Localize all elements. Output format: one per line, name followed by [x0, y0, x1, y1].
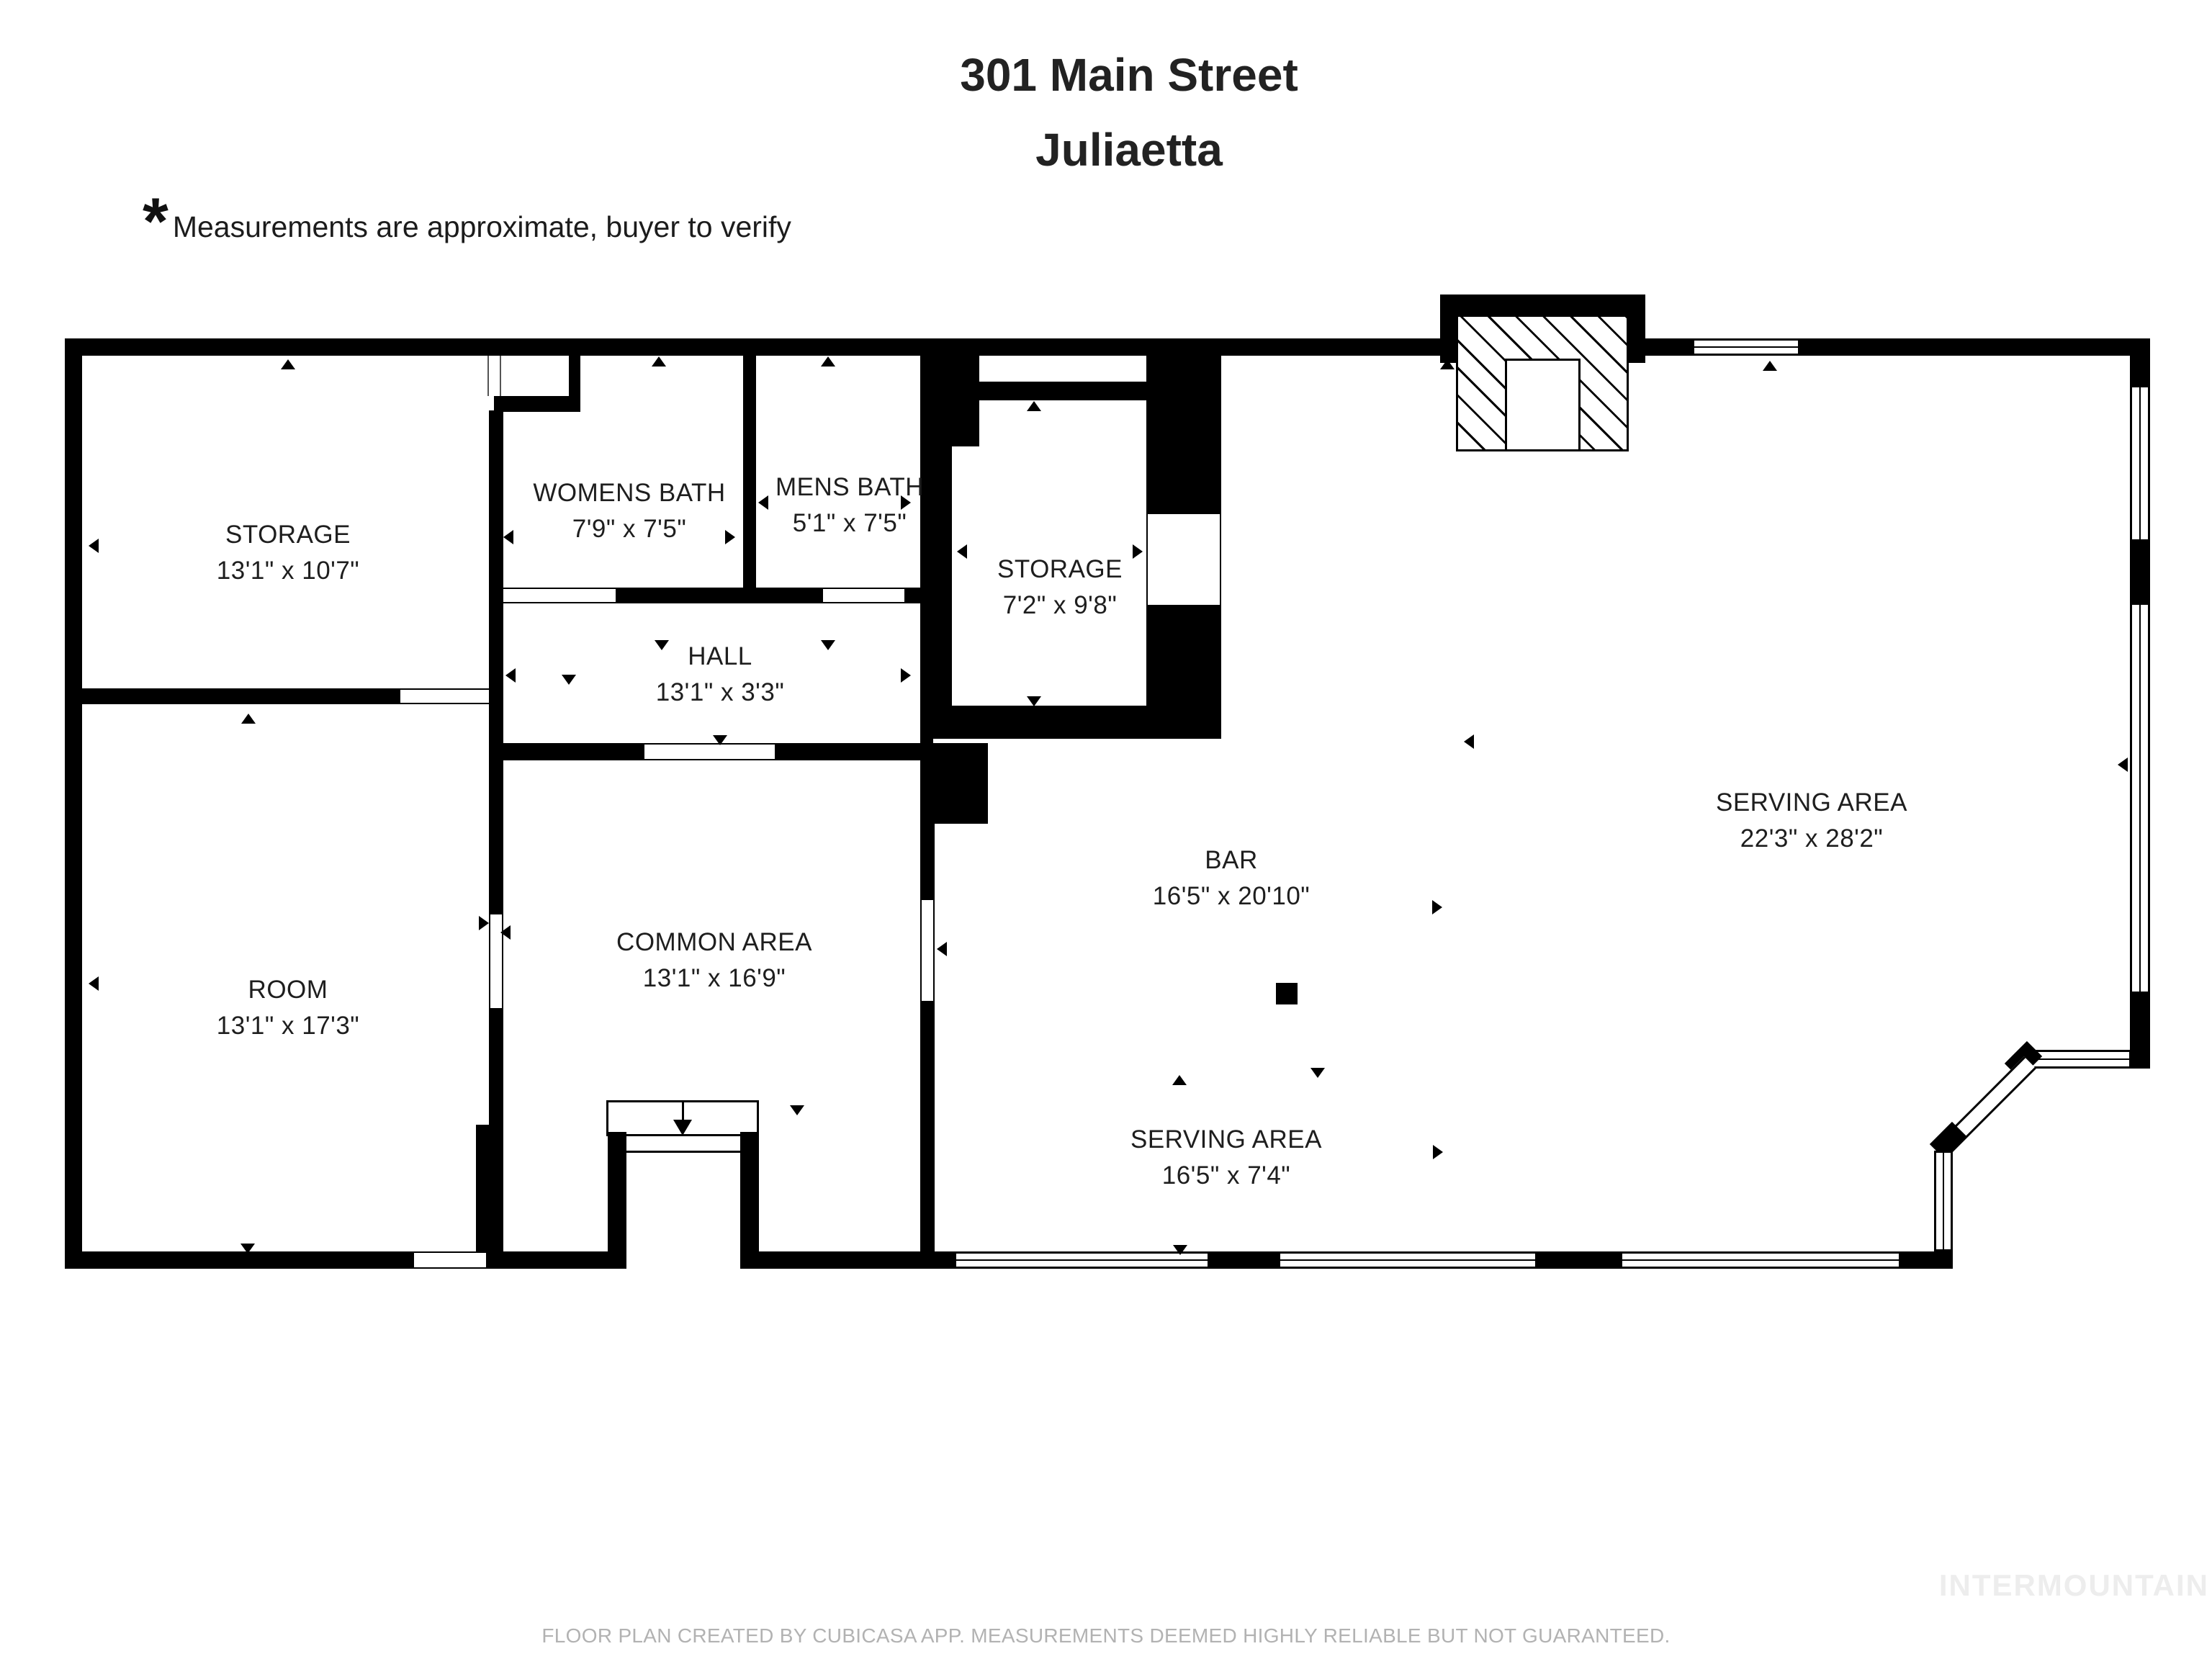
window-se-horizontal — [2031, 1050, 2131, 1069]
door-common-bar — [920, 900, 935, 1001]
wall-room-east — [489, 1008, 503, 1125]
wall-top — [65, 338, 1456, 356]
measure-arrow-icon — [1464, 734, 1474, 749]
wall-storage2-right-upper — [1146, 356, 1221, 514]
entry-threshold-line — [626, 1151, 740, 1153]
room-label-serving-area-small: SERVING AREA 16'5" x 7'4" — [1130, 1125, 1322, 1190]
measure-arrow-icon — [821, 356, 835, 367]
measure-arrow-icon — [1432, 900, 1442, 914]
measure-arrow-icon — [2118, 757, 2128, 772]
wall-bottom — [759, 1251, 954, 1269]
chimney-flue-box — [1505, 359, 1581, 451]
wall-hall-bottom — [489, 743, 644, 760]
entry-door-swing-line — [682, 1102, 684, 1120]
room-label-storage-2: STORAGE 7'2" x 9'8" — [997, 555, 1123, 620]
window-se-vertical — [1934, 1151, 1953, 1251]
wall-storage2-left — [933, 382, 952, 706]
window-bottom-3 — [1620, 1251, 1901, 1269]
measure-arrow-icon — [562, 675, 576, 685]
measure-arrow-icon — [783, 744, 797, 754]
measure-arrow-icon — [479, 916, 489, 930]
address-line: 301 Main Street — [960, 37, 1298, 112]
measure-arrow-icon — [281, 359, 295, 369]
measure-arrow-icon — [1433, 1145, 1443, 1159]
city-line: Juliaetta — [960, 112, 1298, 187]
wall-notch-bottom — [494, 396, 580, 412]
measure-arrow-icon — [1310, 1068, 1325, 1078]
window-bottom-2 — [1278, 1251, 1537, 1269]
door-hall-common — [644, 743, 775, 760]
disclaimer-note: * Measurements are approximate, buyer to… — [143, 200, 791, 244]
watermark-text: INTERMOUNTAIN — [1939, 1568, 2209, 1603]
wall-top — [1800, 338, 2150, 356]
measure-arrow-icon — [1027, 696, 1041, 706]
measure-arrow-icon — [957, 544, 967, 559]
room-label-bar: BAR 16'5" x 20'10" — [1153, 846, 1310, 911]
window-right-upper — [2130, 385, 2150, 541]
measure-arrow-icon — [1763, 361, 1777, 371]
wall-room-east-thick — [476, 1125, 503, 1251]
measure-arrow-icon — [89, 539, 99, 553]
wall-bottom — [1537, 1251, 1620, 1269]
measure-arrow-icon — [713, 735, 727, 745]
room-label-hall: HALL 13'1" x 3'3" — [656, 642, 785, 707]
footer-disclaimer: FLOOR PLAN CREATED BY CUBICASA APP. MEAS… — [0, 1624, 2212, 1647]
wall-bottom — [65, 1251, 414, 1269]
asterisk-icon: * — [143, 200, 168, 243]
wall-storage2-right-lower — [1146, 605, 1221, 706]
wall-bath-bottom — [756, 588, 823, 603]
window-top — [1692, 338, 1800, 356]
wall-bottom — [1901, 1251, 1953, 1269]
wall-storage2-top — [933, 382, 1165, 400]
wall-bottom — [486, 1251, 608, 1269]
room-label-mens-bath: MENS BATH 5'1" x 7'5" — [775, 473, 924, 538]
measure-arrow-icon — [821, 640, 835, 650]
page-title: 301 Main Street Juliaetta — [960, 37, 1298, 187]
room-label-storage-1: STORAGE 13'1" x 10'7" — [217, 521, 359, 585]
wall-right — [2130, 994, 2150, 1069]
measure-arrow-icon — [1172, 1075, 1187, 1085]
wall-corner-block — [920, 743, 988, 824]
measure-arrow-icon — [725, 530, 735, 544]
wall-storage1-bottom — [65, 688, 400, 704]
measure-arrow-icon — [503, 530, 513, 544]
measure-arrow-icon — [1133, 544, 1143, 559]
door-mens-bath — [823, 588, 904, 603]
door-storage2 — [1146, 514, 1221, 605]
note-text: Measurements are approximate, buyer to v… — [173, 210, 791, 244]
room-label-serving-area-main: SERVING AREA 22'3" x 28'2" — [1716, 788, 1907, 853]
measure-arrow-icon — [500, 925, 511, 940]
wall-bottom — [1210, 1251, 1278, 1269]
measure-arrow-icon — [652, 356, 666, 367]
entry-jamb-right — [740, 1132, 759, 1269]
wall-storage2-bottom — [933, 706, 1221, 739]
opening-bottom-room — [414, 1251, 486, 1269]
opening-storage1-room — [400, 688, 489, 704]
measure-arrow-icon — [1173, 1245, 1187, 1255]
measure-arrow-icon — [505, 668, 516, 683]
wall-bath-divider — [743, 356, 756, 603]
wall-right — [2130, 338, 2150, 385]
measure-arrow-icon — [241, 714, 256, 724]
measure-arrow-icon — [790, 1105, 804, 1115]
measure-arrow-icon — [758, 495, 768, 510]
floor-plan-canvas: 301 Main Street Juliaetta * Measurements… — [0, 0, 2212, 1659]
measure-arrow-icon — [89, 976, 99, 991]
entry-door-arrow-icon — [673, 1120, 692, 1136]
notch-slit — [487, 356, 501, 396]
wall-common-east — [920, 1001, 935, 1251]
entry-jamb-left — [608, 1132, 626, 1269]
room-label-womens-bath: WOMENS BATH 7'9" x 7'5" — [533, 479, 725, 544]
room-label-common-area: COMMON AREA 13'1" x 16'9" — [616, 928, 812, 993]
wall-common-east — [920, 824, 935, 900]
room-label-room: ROOM 13'1" x 17'3" — [217, 976, 359, 1040]
measure-arrow-icon — [937, 942, 947, 956]
door-womens-bath — [503, 588, 616, 603]
window-right-lower — [2130, 603, 2150, 994]
measure-arrow-icon — [901, 668, 911, 683]
measure-arrow-icon — [1440, 359, 1455, 369]
wall-room-east — [489, 410, 503, 914]
wall-right — [2130, 541, 2150, 603]
measure-arrow-icon — [1027, 401, 1041, 411]
measure-arrow-icon — [240, 1244, 255, 1254]
bar-post — [1276, 983, 1298, 1004]
wall-bath-bottom — [616, 588, 756, 603]
window-bottom-1 — [954, 1251, 1210, 1269]
wall-left — [65, 338, 82, 1269]
